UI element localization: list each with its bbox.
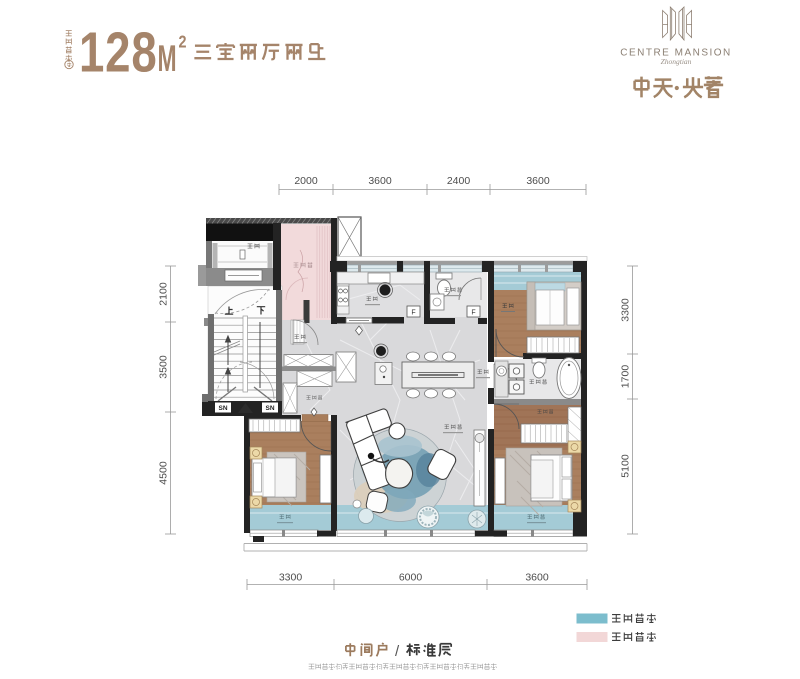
svg-text:4500: 4500 xyxy=(158,461,170,485)
svg-text:128: 128 xyxy=(79,20,157,84)
svg-text:2100: 2100 xyxy=(158,282,170,306)
svg-text:2000: 2000 xyxy=(294,175,318,187)
svg-text:Zhongtian: Zhongtian xyxy=(661,57,692,66)
svg-text:SN: SN xyxy=(265,405,274,412)
svg-text:1700: 1700 xyxy=(620,365,632,389)
svg-text:3600: 3600 xyxy=(526,175,550,187)
svg-text:2400: 2400 xyxy=(447,175,471,187)
svg-text:5100: 5100 xyxy=(620,454,632,478)
svg-text:3600: 3600 xyxy=(525,572,549,584)
svg-text:SN: SN xyxy=(218,405,227,412)
svg-text:M: M xyxy=(158,37,177,79)
svg-text:3500: 3500 xyxy=(158,355,170,379)
svg-text:F: F xyxy=(471,310,475,317)
svg-text:2: 2 xyxy=(179,32,187,52)
svg-text:F: F xyxy=(411,310,415,317)
svg-text:3600: 3600 xyxy=(368,175,392,187)
svg-text:3300: 3300 xyxy=(279,572,303,584)
svg-text:6000: 6000 xyxy=(399,572,423,584)
svg-text:3300: 3300 xyxy=(620,298,632,322)
